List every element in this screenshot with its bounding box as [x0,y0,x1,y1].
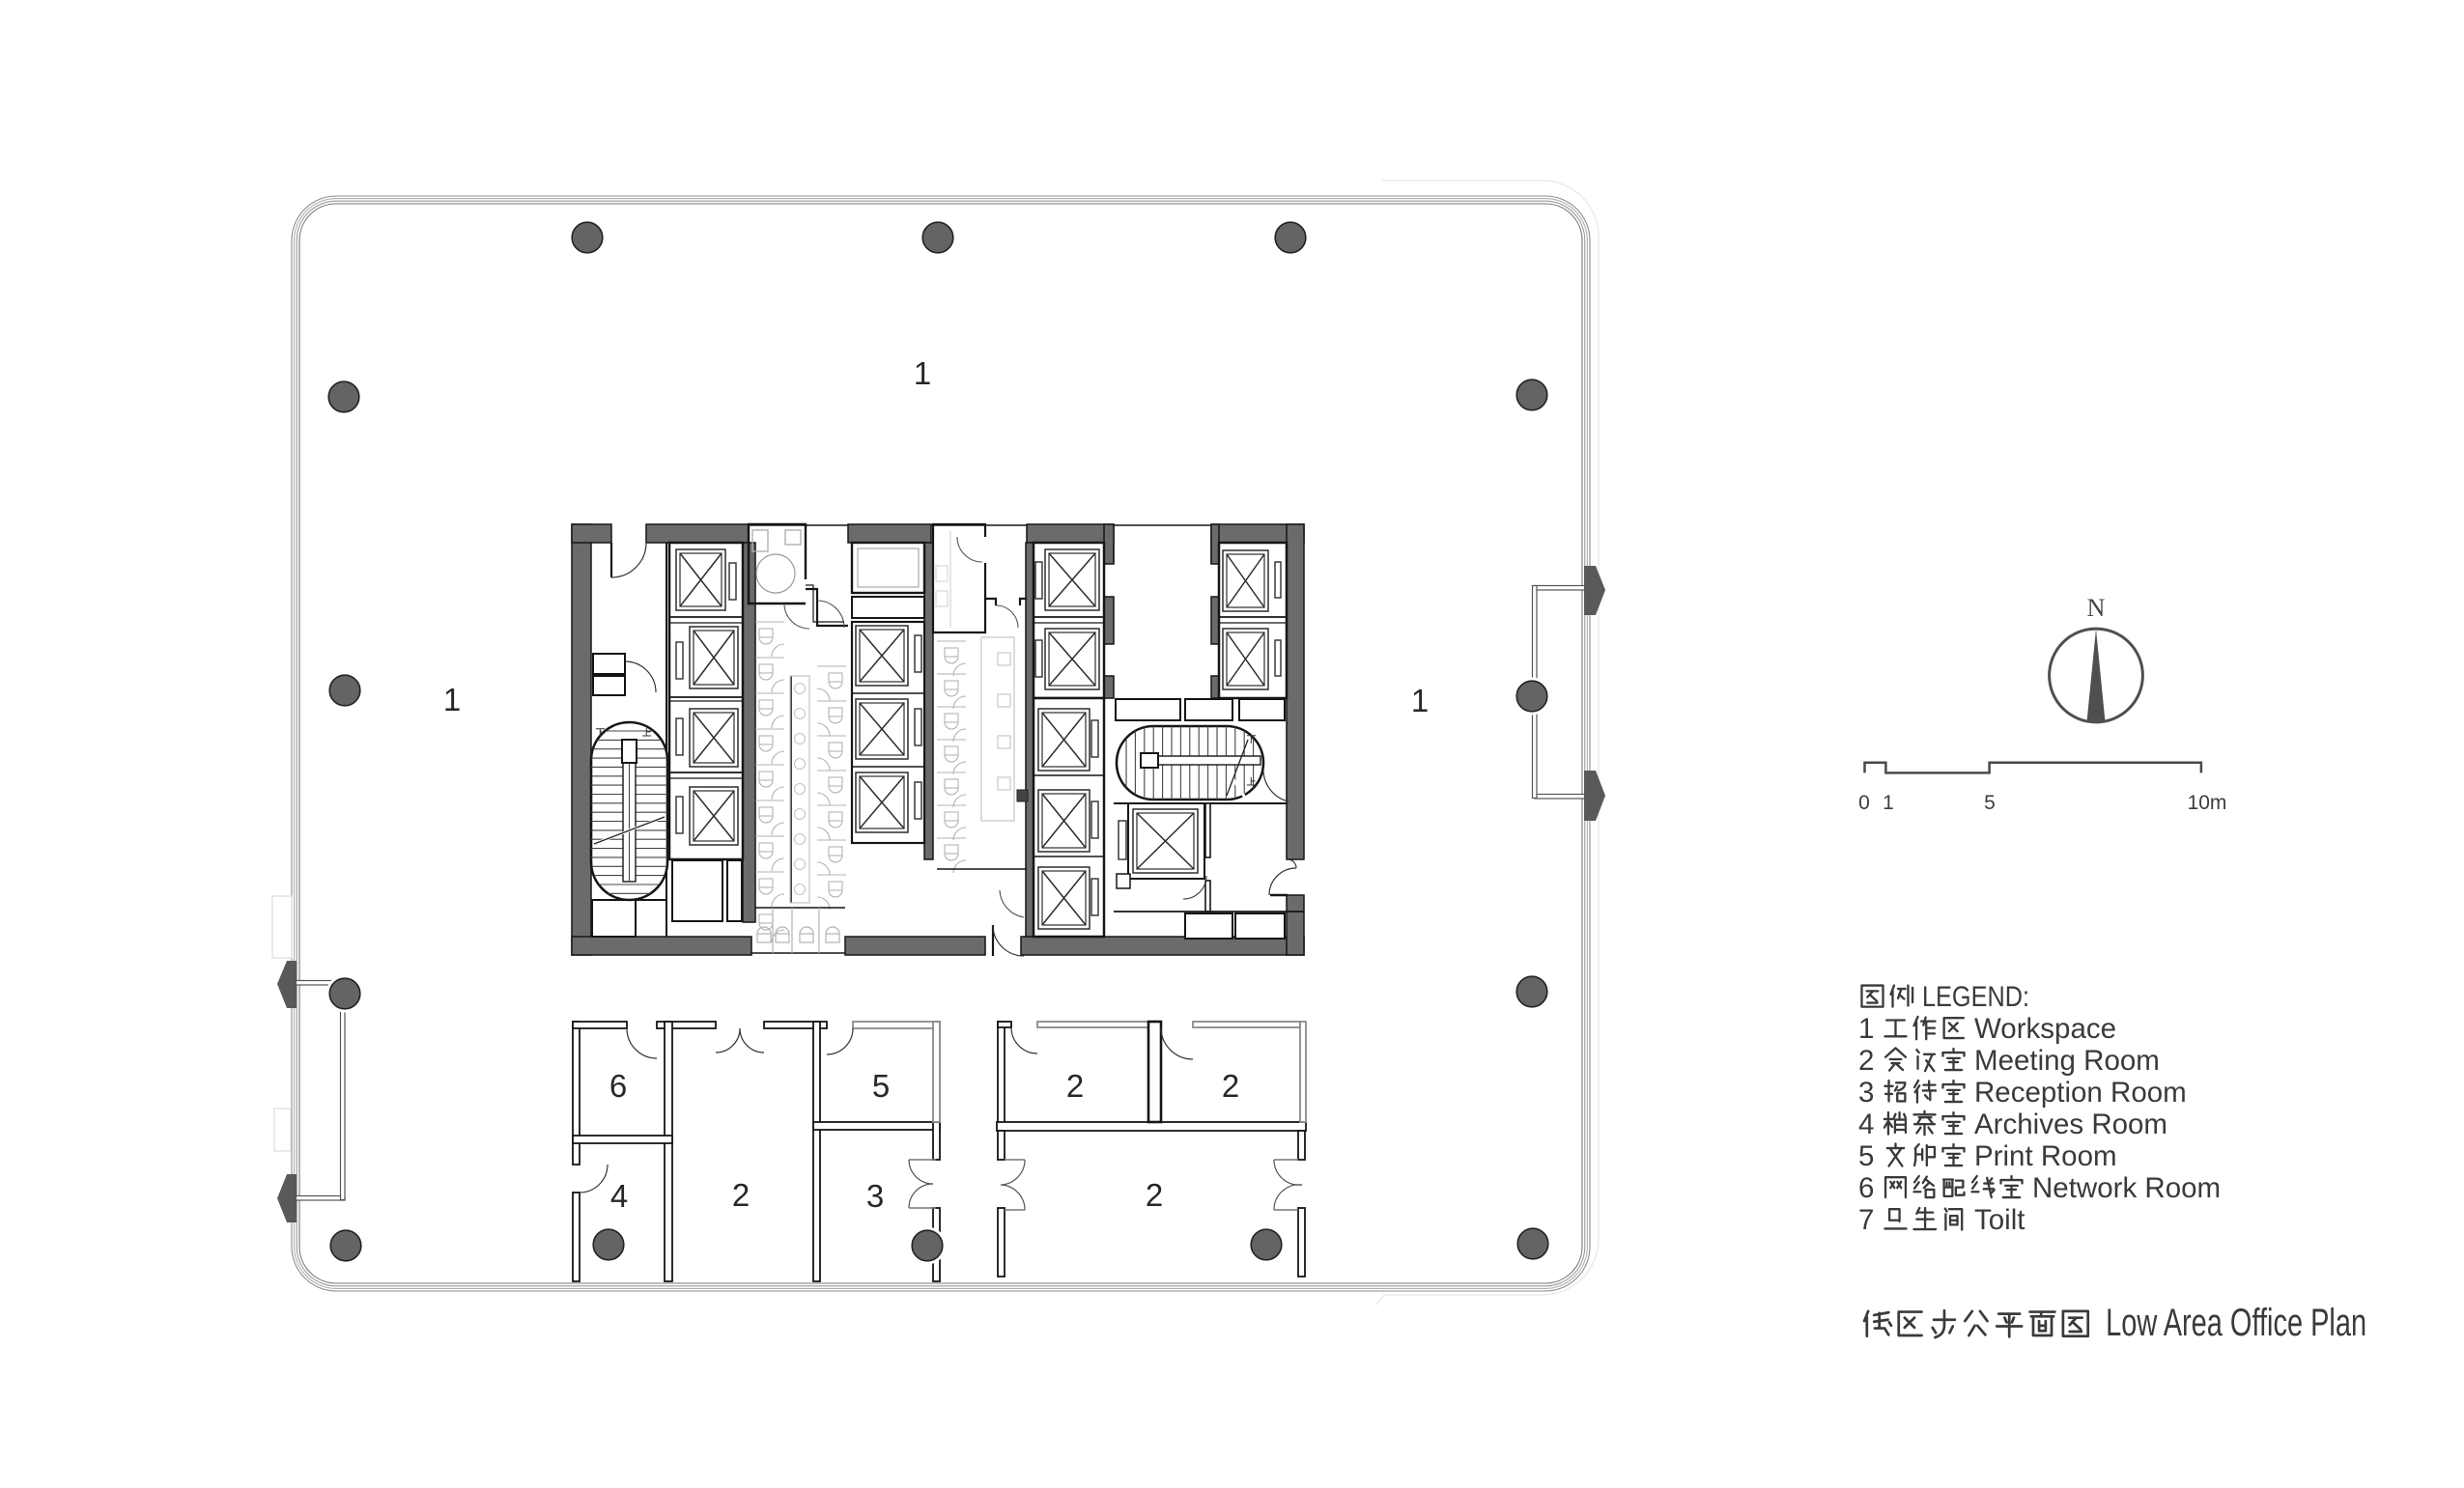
svg-text:1: 1 [443,682,461,717]
svg-text:2: 2 [732,1177,750,1213]
svg-text:Archives Room: Archives Room [1974,1109,2167,1140]
svg-text:2: 2 [1066,1068,1084,1104]
svg-text:LEGEND:: LEGEND: [1922,981,2029,1013]
svg-text:Print Room: Print Room [1974,1140,2117,1172]
svg-text:Workspace: Workspace [1974,1013,2116,1045]
svg-text:1: 1 [1858,1013,1874,1045]
svg-text:3: 3 [1858,1077,1874,1109]
svg-text:0: 0 [1858,792,1870,814]
svg-text:Low Area Office Plan: Low Area Office Plan [2106,1302,2366,1344]
svg-text:6: 6 [1858,1172,1874,1204]
svg-text:1: 1 [914,355,931,391]
svg-text:1: 1 [1411,683,1429,718]
svg-text:2: 2 [1858,1045,1874,1077]
svg-text:N: N [2087,594,2106,622]
svg-text:3: 3 [866,1178,884,1214]
svg-text:6: 6 [609,1068,627,1104]
svg-text:4: 4 [1858,1109,1874,1140]
svg-text:2: 2 [1146,1177,1163,1213]
svg-text:5: 5 [872,1068,890,1104]
svg-text:Toilt: Toilt [1974,1204,2025,1236]
svg-text:1: 1 [1883,792,1894,814]
svg-text:5: 5 [1984,792,1996,814]
svg-text:2: 2 [1222,1068,1239,1104]
svg-text:Reception Room: Reception Room [1974,1077,2187,1109]
svg-text:7: 7 [1858,1204,1874,1236]
svg-text:5: 5 [1858,1140,1874,1172]
svg-text:10m: 10m [2188,792,2227,814]
svg-text:Network Room: Network Room [2032,1172,2221,1204]
svg-text:Meeting Room: Meeting Room [1974,1045,2160,1077]
svg-text:4: 4 [610,1178,628,1214]
